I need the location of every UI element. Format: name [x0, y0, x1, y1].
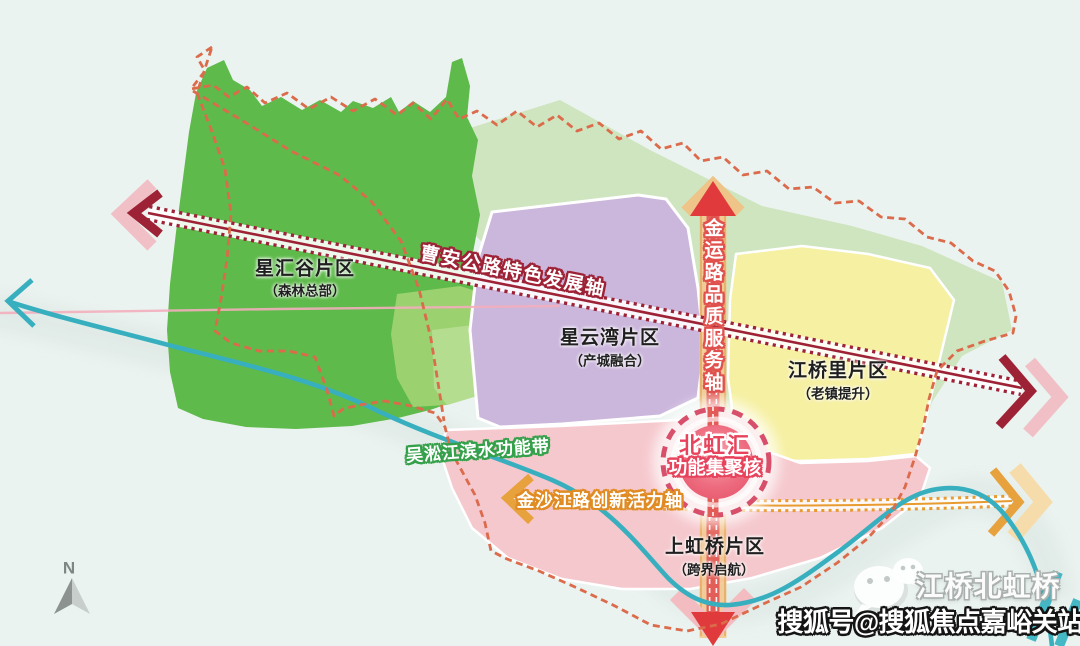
map-canvas — [0, 0, 1080, 646]
region-xinghuigu-label: 星汇谷片区 — [255, 260, 355, 279]
watermark-account-text: 搜狐号@搜狐焦点嘉峪关站 — [777, 609, 1080, 635]
watermark-source-text: 江桥北虹桥 — [915, 573, 1060, 601]
region-xingyunwan-label: 星云湾片区 — [560, 329, 660, 348]
region-jiangqiaoli-label: 江桥里片区 — [788, 362, 888, 381]
region-shanghongqiao-sublabel: （跨界启航） — [674, 563, 755, 577]
core-node-subtitle: 功能集聚核 — [669, 459, 762, 478]
compass-n-label: N — [63, 560, 75, 577]
jinshajiang-axis-label: 金沙江路创新活力轴 — [517, 492, 684, 510]
planning-map: 星汇谷片区 （森林总部） 星云湾片区 （产城融合） 江桥里片区 （老镇提升） 上… — [0, 0, 1080, 646]
region-shanghongqiao-label: 上虹桥片区 — [665, 538, 765, 557]
region-xinghuigu-sublabel: （森林总部） — [265, 284, 346, 298]
region-jiangqiaoli-sublabel: （老镇提升） — [798, 387, 879, 401]
core-node-title: 北虹汇 — [679, 435, 751, 457]
jinyun-axis-label: 金运路品质服务轴 — [703, 218, 722, 394]
region-xingyunwan-sublabel: （产城融合） — [570, 354, 651, 368]
